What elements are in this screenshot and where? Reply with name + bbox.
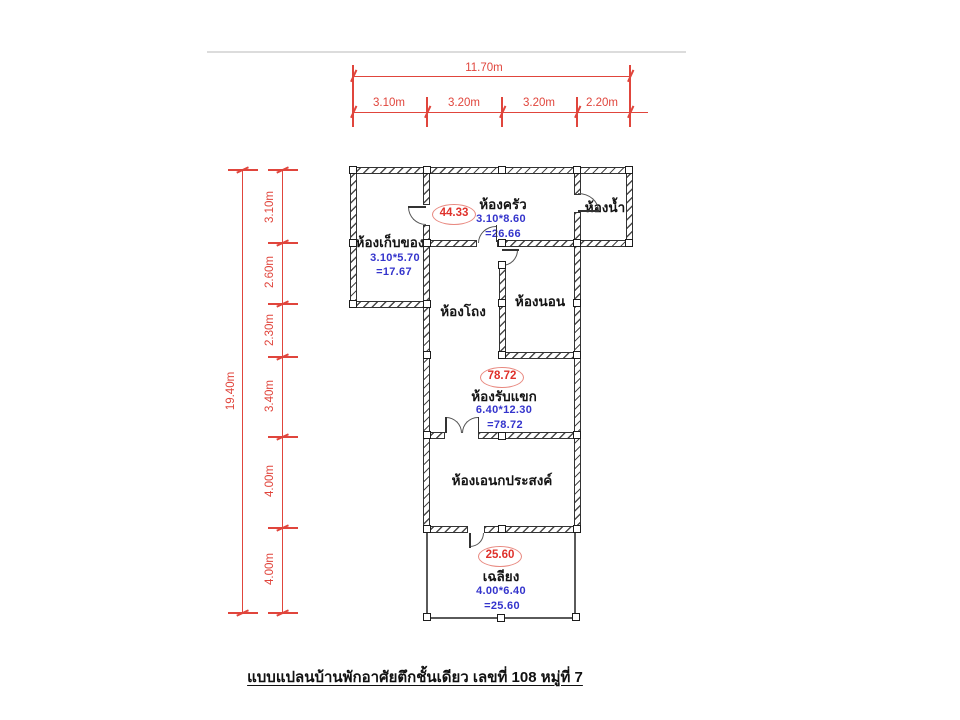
column-post: [573, 166, 581, 174]
area-badge-lower: 25.60: [478, 546, 522, 567]
wall-main-right: [574, 212, 581, 533]
dim-seg-label: 3.10m: [264, 191, 276, 223]
area-badge-middle: 78.72: [480, 367, 524, 388]
wall-porch-left: [426, 533, 428, 619]
door-leaf-storage: [408, 206, 426, 208]
door-leaf-bathroom: [578, 210, 599, 212]
dim-total-width-label: 11.70m: [465, 62, 503, 74]
dim-seg-label: 2.30m: [264, 314, 276, 346]
column-post: [498, 525, 506, 533]
room-label-bedroom: ห้องนอน: [515, 290, 565, 312]
room-label-kitchen: ห้องครัว: [479, 193, 526, 215]
room-label-storage: ห้องเก็บของ: [356, 231, 425, 253]
room-label-hall: ห้องโถง: [440, 300, 486, 322]
column-post: [423, 613, 431, 621]
wall-storage-bottom: [350, 301, 430, 308]
column-post: [498, 432, 506, 440]
column-post: [349, 300, 357, 308]
room-size-porch: 4.00*6.40: [476, 585, 526, 597]
door-swing-icon: [462, 417, 478, 433]
wall-bathroom-right: [626, 167, 633, 246]
room-area-living: =78.72: [487, 419, 523, 431]
door-leaf-bedroom: [502, 249, 519, 251]
column-post: [573, 239, 581, 247]
column-post: [497, 614, 505, 622]
dim-seg-label: 3.20m: [523, 97, 555, 109]
column-post: [498, 299, 506, 307]
dim-total-height-label: 19.40m: [225, 372, 237, 410]
wall-main-left: [423, 225, 430, 533]
door-swing-icon: [408, 207, 426, 225]
dim-seg-label: 2.20m: [586, 97, 618, 109]
floor-plan-page: 11.70m 3.10m 3.20m 3.20m 2.20m 19.40m 3.…: [0, 0, 960, 720]
dim-seg-label: 4.00m: [264, 553, 276, 585]
wall-living-bottom: [478, 432, 580, 439]
door-swing-icon: [470, 533, 484, 547]
door-leaf-kitchen: [496, 225, 498, 242]
column-post: [349, 239, 357, 247]
wall-bedroom-bottom: [499, 352, 580, 359]
column-post: [423, 166, 431, 174]
dim-line-total-height: [242, 170, 244, 613]
column-post: [498, 239, 506, 247]
plan-caption: แบบแปลนบ้านพักอาศัยตึกชั้นเดียว เลขที่ 1…: [247, 665, 583, 689]
dim-seg-label: 3.10m: [373, 97, 405, 109]
area-badge-upper: 44.33: [432, 204, 476, 225]
column-post: [573, 299, 581, 307]
dim-seg-label: 2.60m: [264, 256, 276, 288]
room-area-storage: =17.67: [376, 266, 412, 278]
column-post: [573, 351, 581, 359]
door-swing-icon: [446, 417, 462, 433]
column-post: [423, 300, 431, 308]
wall-kitchen-bottom: [423, 240, 477, 247]
column-post: [498, 351, 506, 359]
room-label-porch: เฉลียง: [483, 565, 520, 587]
dim-seg-label: 3.40m: [264, 380, 276, 412]
column-post: [573, 525, 581, 533]
dim-line-total-width: [353, 76, 630, 78]
column-post: [498, 166, 506, 174]
room-area-porch: =25.60: [484, 600, 520, 612]
dim-seg-label: 3.20m: [448, 97, 480, 109]
page-top-rule: [207, 51, 686, 53]
column-post: [625, 166, 633, 174]
door-leaf-porch: [469, 533, 471, 548]
room-size-living: 6.40*12.30: [476, 404, 532, 416]
column-post: [498, 261, 506, 269]
column-post: [572, 613, 580, 621]
door-leaf-entrance-right: [478, 417, 480, 433]
column-post: [423, 351, 431, 359]
dim-seg-label: 4.00m: [264, 465, 276, 497]
room-size-kitchen: 3.10*8.60: [476, 213, 526, 225]
door-leaf-entrance-left: [445, 417, 447, 433]
column-post: [349, 166, 357, 174]
dim-line-height-segments: [282, 170, 284, 613]
room-label-multipurpose: ห้องเอนกประสงค์: [452, 469, 553, 491]
column-post: [423, 431, 431, 439]
door-swing-icon: [478, 226, 496, 243]
room-size-storage: 3.10*5.70: [370, 252, 420, 264]
column-post: [573, 431, 581, 439]
wall-kitchen-bottom: [497, 240, 633, 247]
wall-top: [350, 167, 633, 174]
column-post: [423, 525, 431, 533]
wall-bedroom-left: [499, 265, 506, 355]
wall-porch-right: [574, 533, 576, 619]
column-post: [625, 239, 633, 247]
column-post: [423, 239, 431, 247]
